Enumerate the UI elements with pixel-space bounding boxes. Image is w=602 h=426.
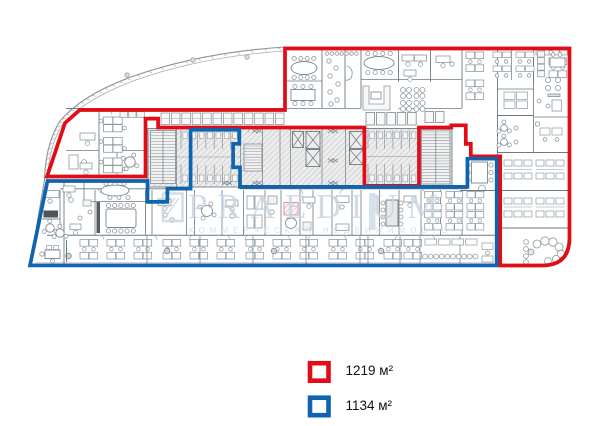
svg-text:1219 м²: 1219 м² bbox=[346, 363, 394, 378]
svg-text:PRAEDIUM: PRAEDIUM bbox=[188, 187, 448, 226]
svg-text:1134 м²: 1134 м² bbox=[346, 398, 393, 413]
